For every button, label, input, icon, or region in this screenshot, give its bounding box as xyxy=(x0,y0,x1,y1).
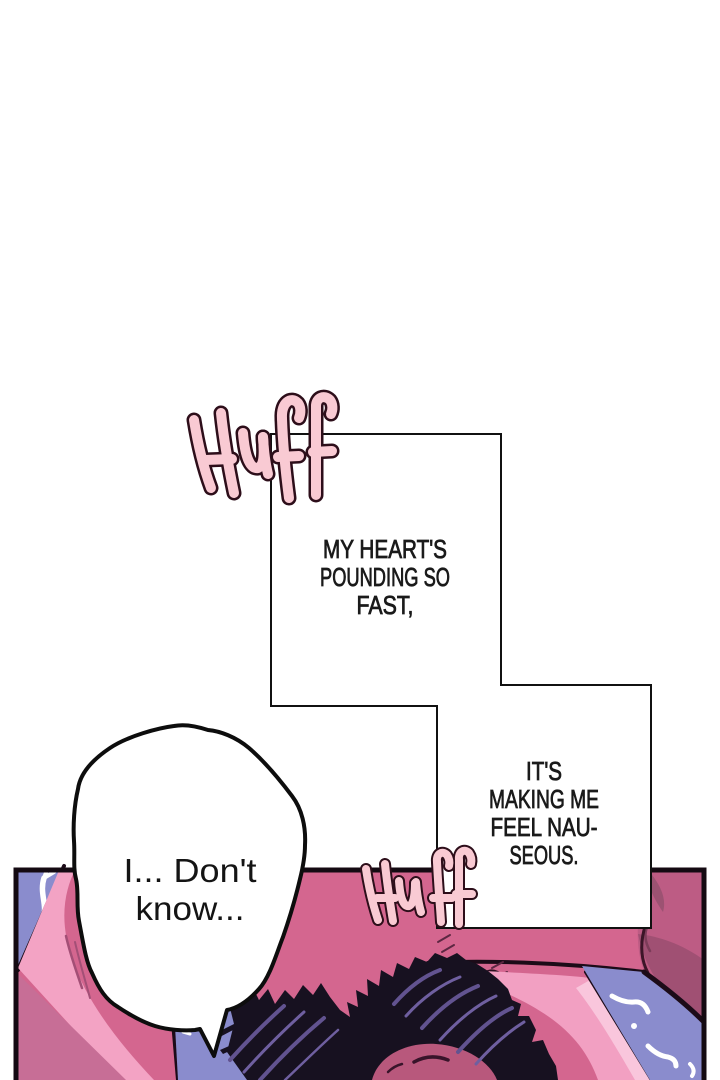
svg-text:IT'S: IT'S xyxy=(526,758,562,786)
svg-text:I... Don't: I... Don't xyxy=(124,852,257,889)
svg-text:MY HEART'S: MY HEART'S xyxy=(323,536,447,564)
svg-text:SEOUS.: SEOUS. xyxy=(510,842,579,870)
svg-text:know...: know... xyxy=(136,890,245,927)
svg-text:FAST,: FAST, xyxy=(357,592,414,620)
svg-text:POUNDING SO: POUNDING SO xyxy=(320,564,450,592)
svg-text:FEEL NAU-: FEEL NAU- xyxy=(491,814,598,842)
svg-text:MAKING ME: MAKING ME xyxy=(489,786,599,814)
